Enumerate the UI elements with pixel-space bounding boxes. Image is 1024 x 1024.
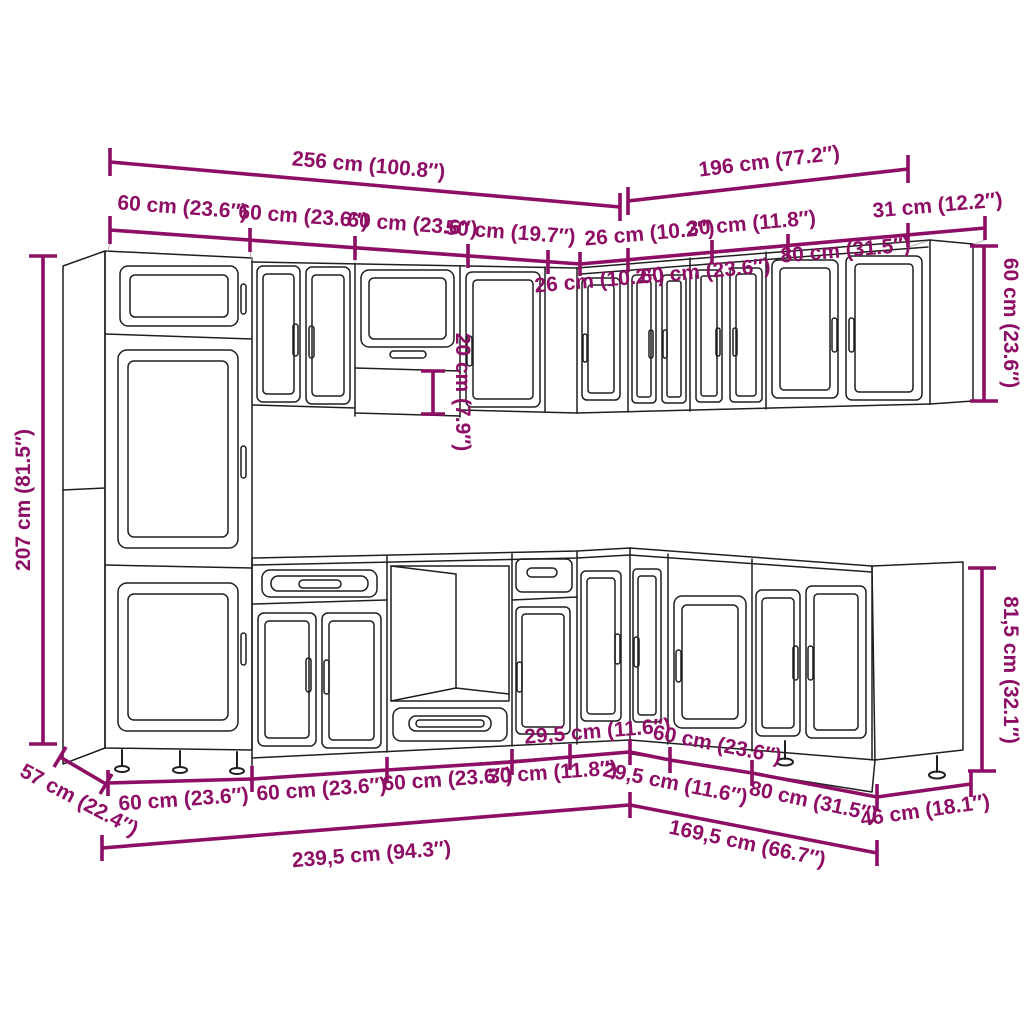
dim-base-height: 81,5 cm (32.1″) (999, 596, 1022, 744)
door-handle (241, 446, 246, 478)
dim-wall-left-1: 60 cm (23.6″) (117, 191, 249, 223)
dimension-diagram: 256 cm (100.8″) 196 cm (77.2″) 60 cm (23… (0, 0, 1024, 1024)
door-handle (241, 633, 246, 665)
door-handle (293, 324, 298, 356)
dim-total-right: 196 cm (77.2″) (697, 141, 841, 181)
door-handle (634, 637, 639, 667)
door-handle (849, 318, 854, 352)
drawer-handle (409, 716, 491, 731)
door-handle (676, 650, 681, 682)
dim-wall-left-4: 50 cm (19.7″) (445, 216, 577, 248)
door-handle (517, 662, 522, 692)
dim-gap-height: 20 cm (7.9″) (451, 333, 474, 452)
dim-wall-corner-30: 30 cm (11.8″) (686, 206, 817, 240)
dim-base-left-1: 60 cm (23.6″) (118, 783, 250, 815)
wall-cabinets-left (252, 262, 577, 417)
door-handle (663, 330, 667, 358)
end-side-panel (872, 562, 963, 760)
dim-base-total-left: 239,5 cm (94.3″) (291, 837, 452, 872)
door-handle (583, 334, 587, 362)
dim-wall-right-60: 60 cm (23.6″) (640, 254, 772, 288)
door-handle (615, 634, 620, 664)
door-handle (808, 646, 813, 680)
door-handle (716, 328, 720, 356)
dim-base-total-right: 169,5 cm (66.7″) (667, 816, 828, 872)
door-handle (832, 318, 837, 352)
tall-cabinet (63, 251, 252, 764)
dimension-labels: 256 cm (100.8″) 196 cm (77.2″) 60 cm (23… (12, 141, 1022, 872)
dim-corner-right: 29,5 cm (11.6″) (601, 758, 749, 809)
door-handle (390, 351, 426, 358)
door-handle (241, 284, 246, 314)
drawer-handle (527, 568, 557, 577)
door-handle (793, 646, 798, 680)
door-handle (733, 328, 737, 356)
door-handle (324, 660, 329, 694)
dim-corner-left: 29,5 cm (11.6″) (523, 714, 671, 748)
dim-wall-height: 60 cm (23.6″) (999, 258, 1022, 388)
dim-tall-height: 207 cm (81.5″) (12, 429, 35, 571)
kitchen-drawing (63, 240, 973, 792)
drawer-handle (299, 580, 341, 588)
